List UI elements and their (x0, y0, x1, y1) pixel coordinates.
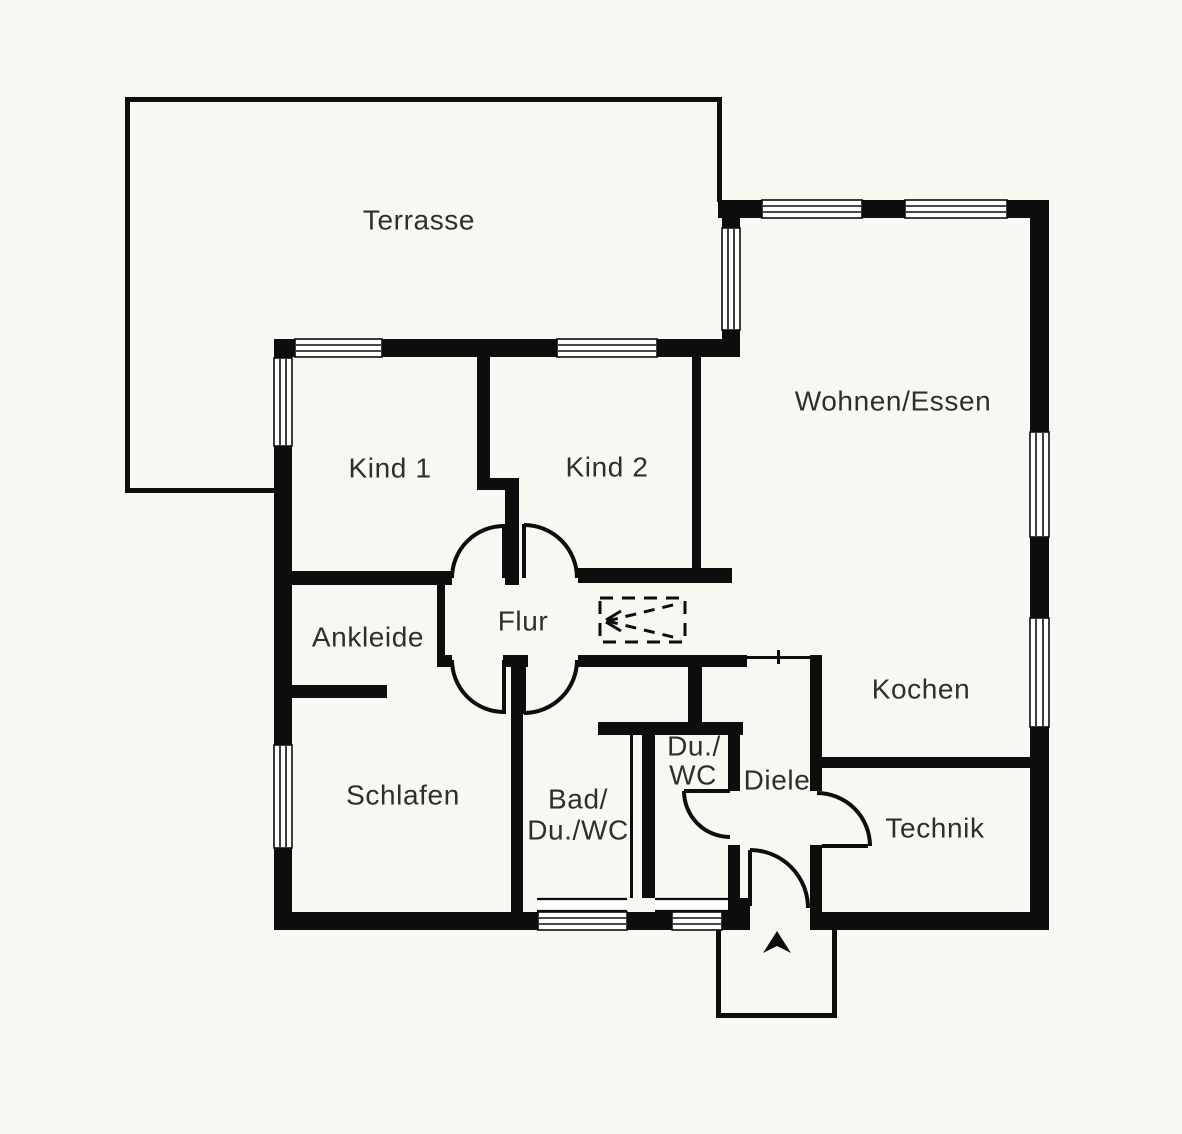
label-flur: Flur (498, 605, 549, 636)
door-entrance (750, 850, 808, 908)
window-wohnen-east (1030, 432, 1049, 537)
window-schlafen-west (274, 745, 292, 848)
label-wohnen: Wohnen/Essen (795, 385, 992, 416)
label-kind1: Kind 1 (349, 452, 432, 483)
wall-diele-east-lower (810, 845, 822, 930)
label-diele: Diele (744, 764, 811, 795)
window-wohnen-west (722, 228, 740, 330)
wall-installation (642, 735, 655, 898)
label-kochen: Kochen (872, 673, 971, 704)
window-duwc-south (672, 912, 722, 930)
wall-door-stub-top (505, 490, 519, 585)
wall-jog (477, 478, 519, 490)
window-wohnen-north-2 (905, 200, 1007, 218)
shaft-line (630, 735, 633, 898)
window-kind1-north (295, 339, 382, 357)
wall-kind1-kind2 (477, 357, 490, 478)
door-technik (817, 793, 870, 846)
wall-kochen-technik (822, 757, 1030, 768)
label-terrasse: Terrasse (363, 204, 475, 235)
label-duwc-line1: Du./ (667, 730, 721, 761)
wardrobe-symbol (600, 598, 685, 642)
window-kochen-east (1030, 618, 1049, 727)
wall-ankleide-south (292, 685, 387, 698)
wall-duwc-east-lower (728, 845, 740, 900)
door-schlafen (452, 660, 504, 714)
wall-ankleide-east (437, 585, 445, 655)
wall-flur-south-right (578, 655, 747, 667)
label-kind2: Kind 2 (566, 451, 649, 482)
passage-line (747, 650, 812, 664)
label-bad-line2: Du./WC (527, 814, 629, 845)
threshold-duwc (655, 898, 728, 912)
threshold-bad (537, 898, 627, 912)
wall-schlafen-bad (511, 655, 523, 913)
window-wohnen-north-1 (762, 200, 862, 218)
wall-kind1-south (292, 571, 452, 585)
wall-kind2-wohnen (692, 357, 701, 568)
wall-flur-south-left (437, 655, 452, 667)
thresholds (537, 898, 728, 912)
north-arrow-icon (763, 931, 791, 953)
door-bad (524, 660, 577, 714)
label-duwc-line2: WC (669, 759, 717, 790)
door-kind1 (452, 524, 504, 578)
label-ankleide: Ankleide (312, 621, 424, 652)
door-kind2 (524, 524, 577, 578)
wall-bad-lobe-east (688, 655, 702, 722)
window-bad-south (538, 912, 627, 930)
wall-kind2-south (578, 568, 732, 583)
label-technik: Technik (885, 812, 985, 843)
label-schlafen: Schlafen (346, 779, 460, 810)
wall-diele-east-upper (810, 655, 822, 791)
terrace-outline (125, 97, 722, 493)
passage-tick (777, 650, 780, 664)
window-kind1-west (274, 358, 292, 446)
door-duwc (684, 791, 730, 837)
window-kind2-north (557, 339, 657, 357)
wall-duwc-east-upper (728, 735, 740, 791)
label-bad-line1: Bad/ (548, 783, 608, 814)
floor-plan: Terrasse Kind 1 Kind 2 Wohnen/Essen Ankl… (0, 0, 1182, 1134)
